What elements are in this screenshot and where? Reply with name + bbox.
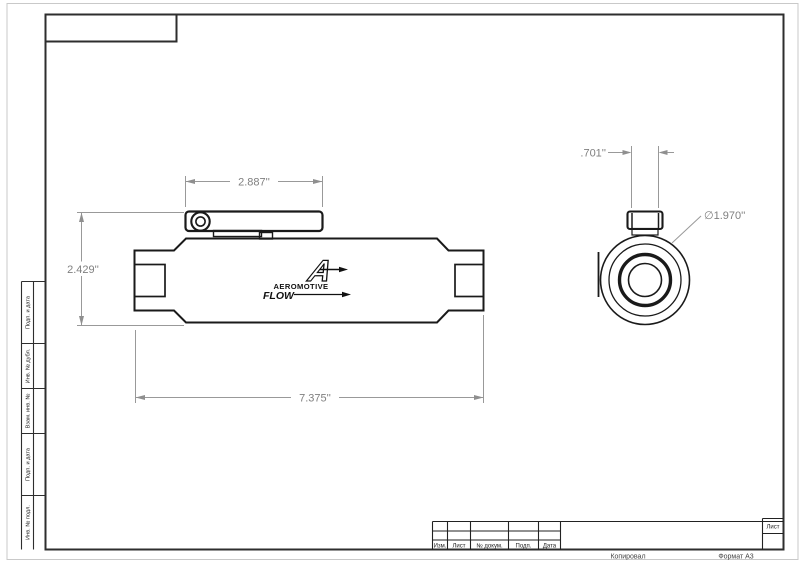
dim-value: ∅1.970'' <box>704 210 745 222</box>
dim-value: .701'' <box>580 148 606 160</box>
footer-copied: Копировал <box>610 554 645 561</box>
footer-format: Формат А3 <box>718 554 753 561</box>
strip-label: Подп. и дата <box>26 295 32 329</box>
strip-label: Взам. инв. № <box>26 394 32 429</box>
tb-col-ndoc: № докум. <box>476 543 503 550</box>
tb-sheet-label: Лист <box>766 525 779 531</box>
tb-col-data: Дата <box>543 544 557 550</box>
dim-value: 2.429'' <box>67 264 99 276</box>
dim-value: 7.375'' <box>299 393 331 405</box>
strip-label: Подп. и дата <box>26 447 32 481</box>
strip-label: Инв. № дубл. <box>26 348 32 383</box>
engineering-drawing: Подп. и дата Инв. № дубл. Взам. инв. № П… <box>0 0 800 565</box>
dim-value: 2.887'' <box>238 177 270 189</box>
sheet-edge <box>7 4 798 560</box>
tb-col-izm: Изм. <box>434 544 447 550</box>
strip-label: Инв. № подл. <box>26 505 32 540</box>
drawing-sheet: Подп. и дата Инв. № дубл. Взам. инв. № П… <box>0 0 800 565</box>
logo-flow-text: FLOW <box>263 290 295 302</box>
tb-col-podp: Подп. <box>516 544 532 550</box>
tb-col-list: Лист <box>452 544 465 550</box>
